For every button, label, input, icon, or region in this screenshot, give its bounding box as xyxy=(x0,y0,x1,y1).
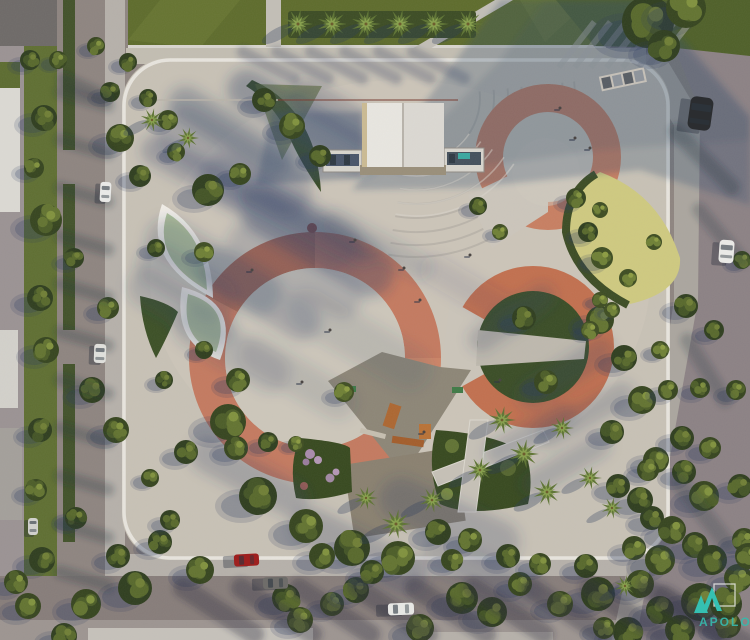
svg-text:APOLO: APOLO xyxy=(699,615,750,629)
